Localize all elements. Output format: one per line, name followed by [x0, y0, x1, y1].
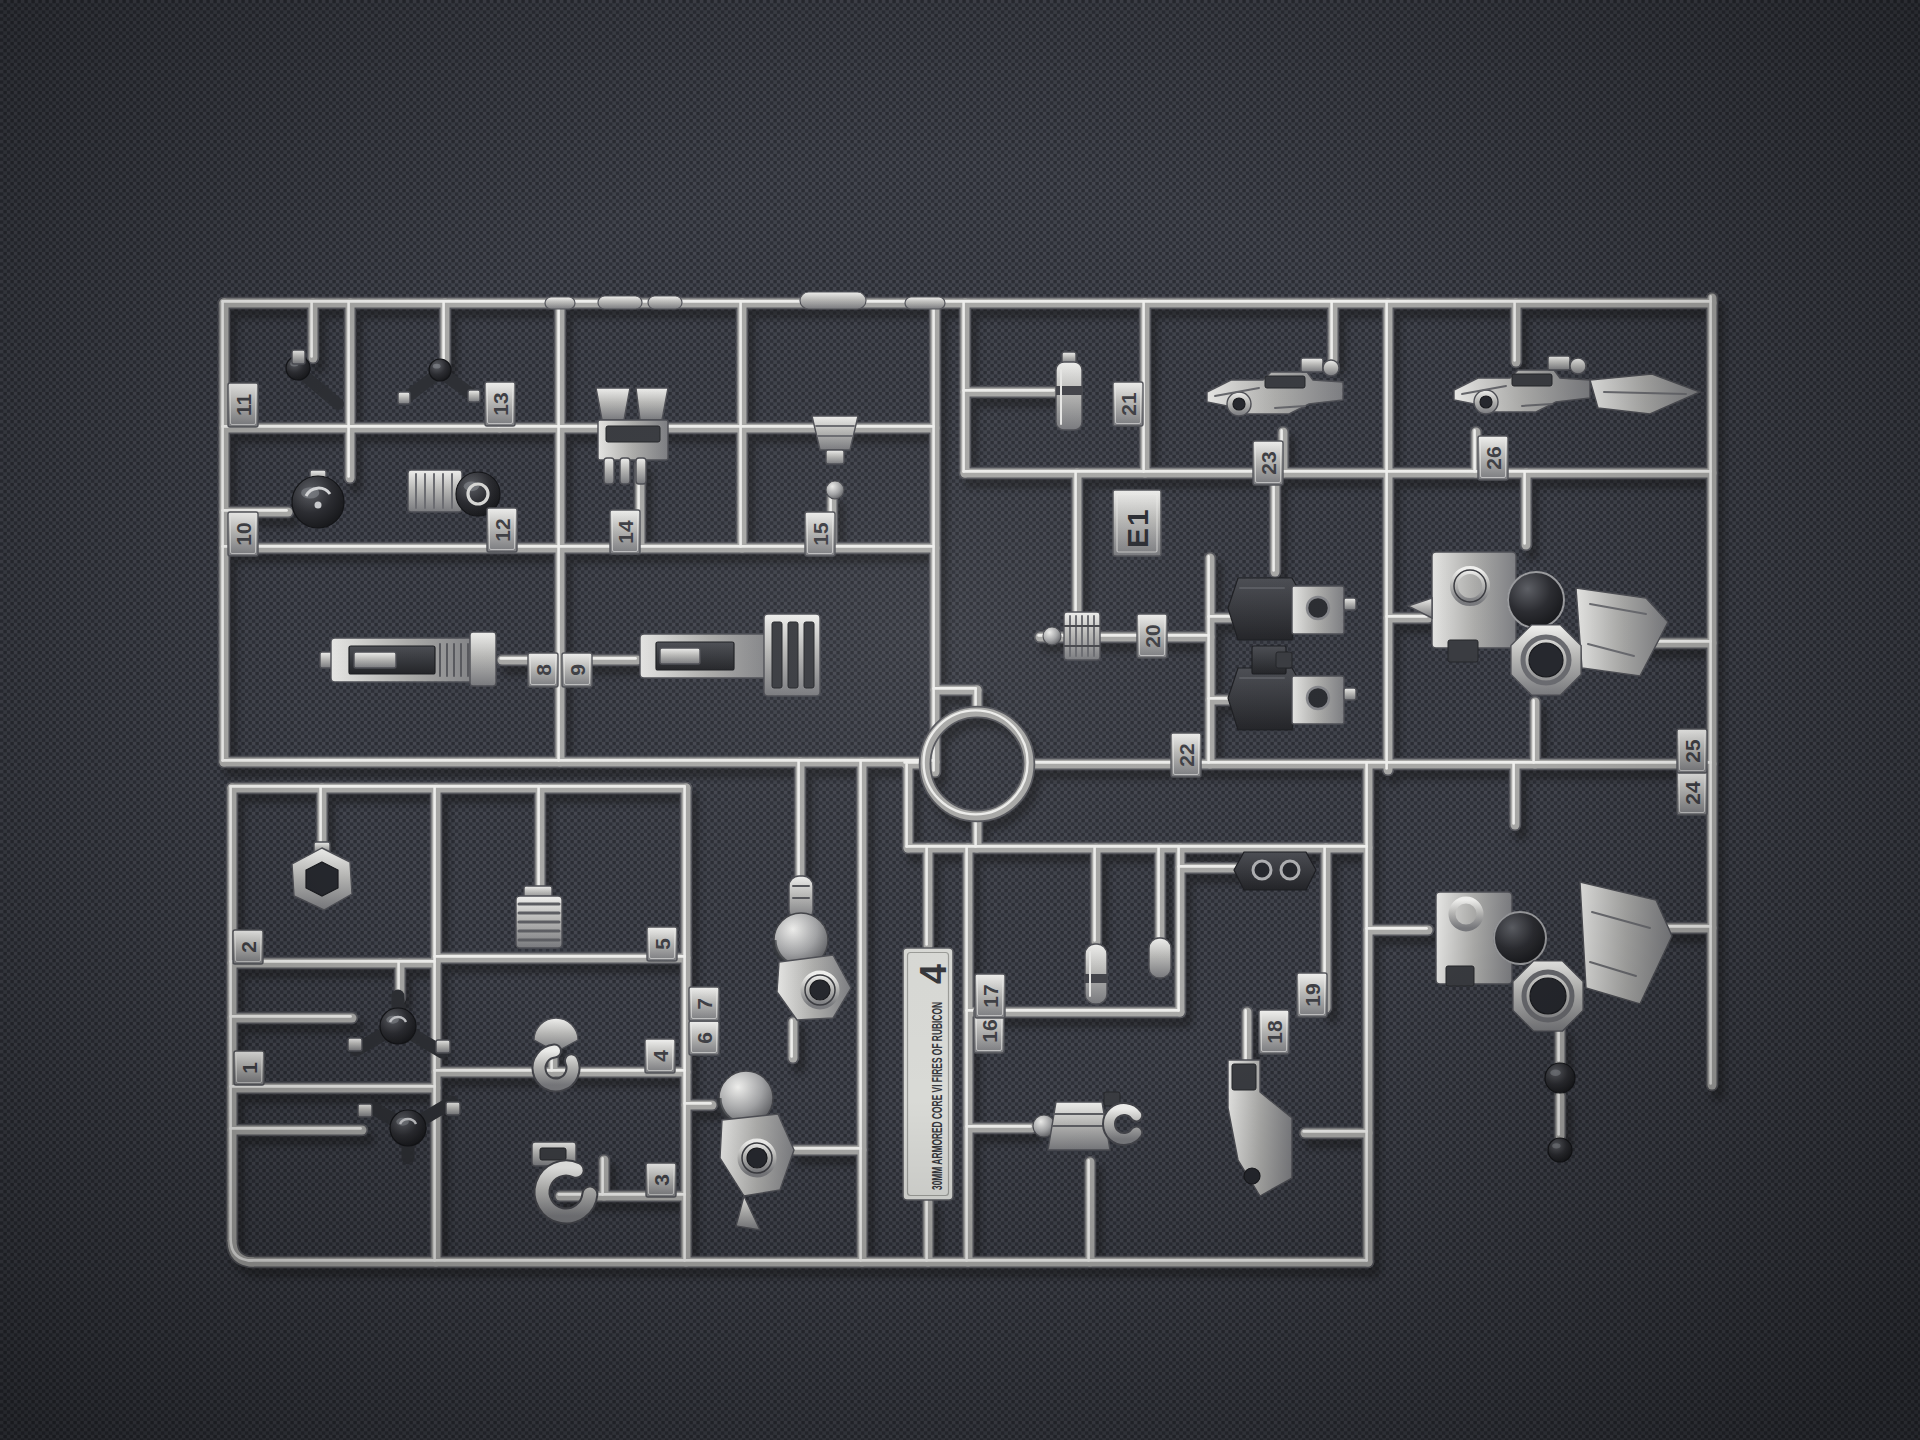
photo-stage: 1234567891011121314151617181920212223242… [0, 0, 1920, 1440]
model-kit-sprue-photo: 1234567891011121314151617181920212223242… [0, 0, 1920, 1440]
photo-vignette [0, 0, 1920, 1440]
